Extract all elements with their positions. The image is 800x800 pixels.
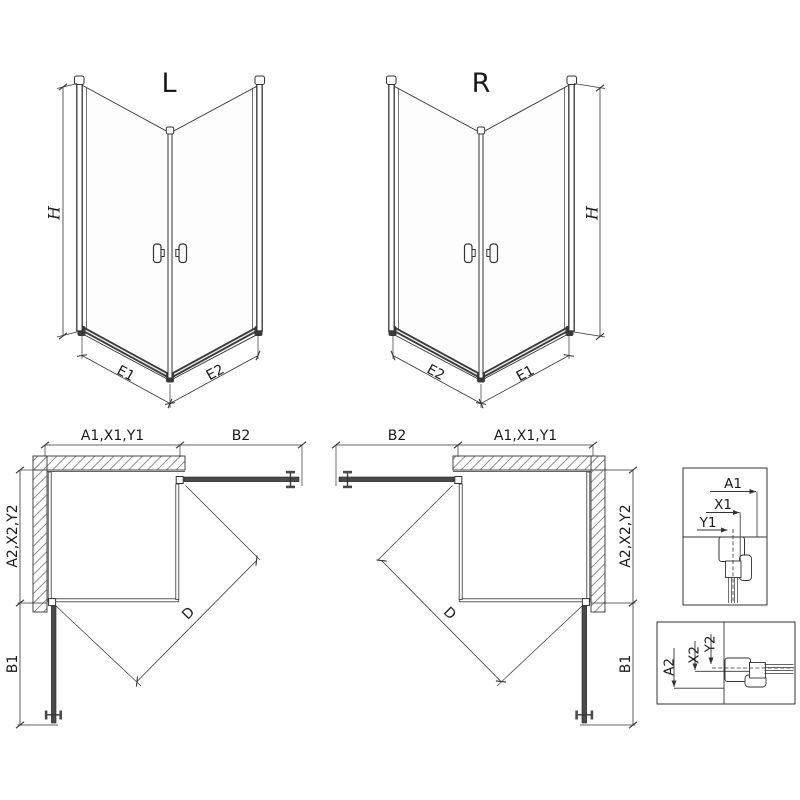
hinge-top [176, 477, 183, 484]
dim-label-height-left: H [45, 205, 64, 221]
detail-top-dim-x1: X1 [714, 497, 732, 513]
iso-right-title: R [472, 68, 491, 99]
wall-left [33, 456, 47, 612]
dim-label-e2-left: E2 [204, 362, 227, 385]
plan-left-dim-top-door: B2 [232, 428, 251, 444]
iso-view-right [387, 76, 606, 408]
dim-label-e1-left: E1 [114, 363, 137, 386]
hinge-top [455, 477, 462, 484]
drawing-canvas: L R H E1 E2 H E2 E1 A1,X1,Y1 B2 A2,X2,Y2… [0, 0, 800, 800]
dim-label-e2-right: E2 [424, 362, 447, 385]
door-open-side [582, 606, 587, 723]
wall-right [591, 456, 605, 612]
wall-top [33, 456, 185, 470]
plan-right-dim-diagonal: D [440, 604, 459, 623]
hinge-bottom [582, 599, 589, 606]
plan-left-dim-top-main: A1,X1,Y1 [81, 428, 144, 444]
detail-top-dim-y1: Y1 [699, 515, 717, 531]
plan-left-dim-side-main: A2,X2,Y2 [5, 504, 21, 567]
plan-left-dim-side-door: B1 [5, 655, 21, 674]
door-open-top [339, 477, 454, 482]
door-open-side [51, 606, 56, 723]
dim-label-height-right: H [583, 205, 602, 221]
plan-right-dim-side-main: A2,X2,Y2 [618, 504, 634, 567]
plan-right-dim-top-main: A1,X1,Y1 [494, 428, 557, 444]
dim-label-e1-right: E1 [514, 363, 537, 386]
technical-drawing-page: L R H E1 E2 H E2 E1 A1,X1,Y1 B2 A2,X2,Y2… [0, 0, 800, 800]
detail-top-dim-a1: A1 [724, 476, 742, 492]
plan-left-dim-diagonal: D [179, 604, 198, 623]
iso-left-title: L [161, 68, 176, 99]
plan-right-dim-top-door: B2 [388, 428, 407, 444]
wall-top [453, 456, 605, 470]
plan-view-left [16, 442, 306, 728]
iso-view-left [57, 76, 265, 408]
plan-right-dim-side-door: B1 [618, 655, 634, 674]
detail-bottom-dim-a2: A2 [662, 658, 678, 676]
plan-view-right [332, 442, 637, 728]
door-open-top [184, 477, 299, 482]
hinge-bottom [49, 599, 56, 606]
detail-bottom-dim-x2: X2 [687, 646, 703, 664]
detail-bottom-dim-y2: Y2 [703, 636, 719, 654]
